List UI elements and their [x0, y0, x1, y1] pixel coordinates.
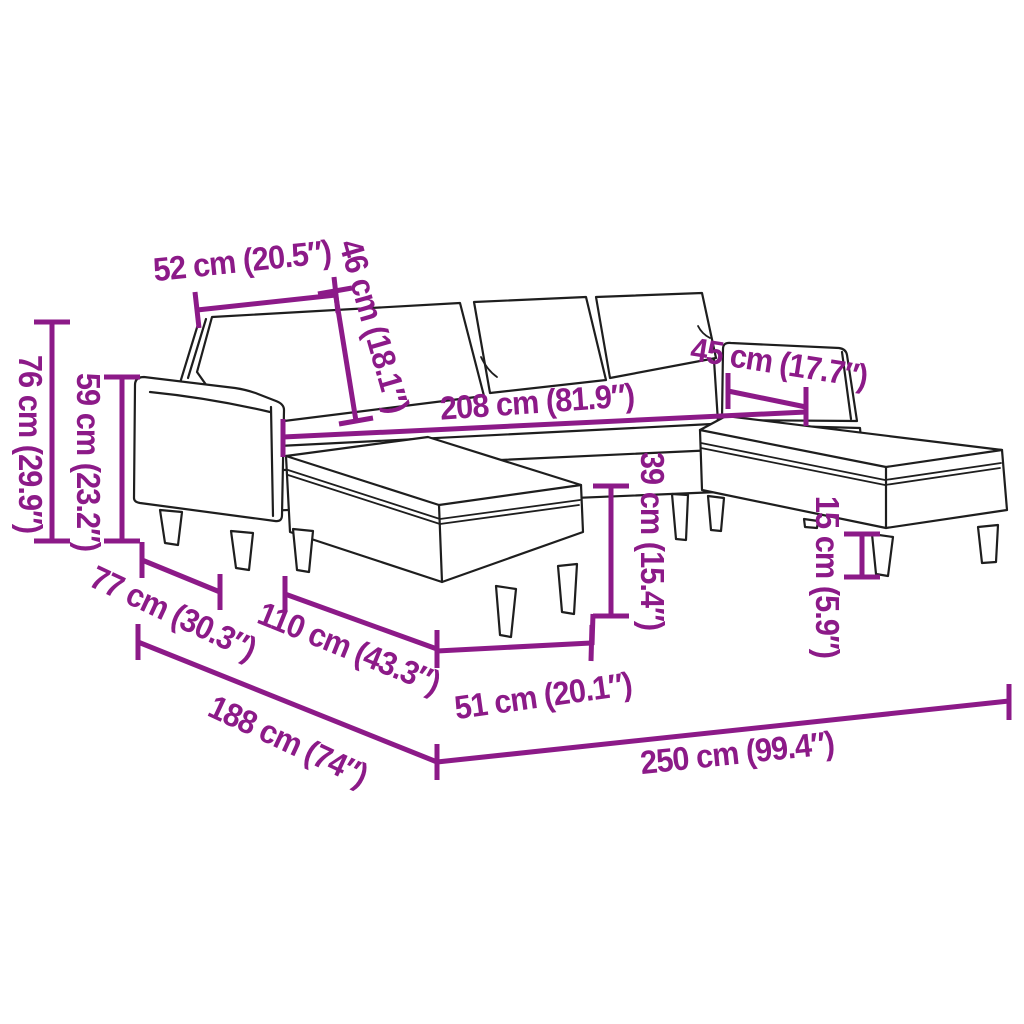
- dim-label-seat-height: 39 cm (15.4″): [633, 452, 671, 630]
- dim-label-armrest-height: 59 cm (23.2″): [69, 373, 107, 551]
- left-footstool-leg-c: [558, 564, 577, 614]
- right-footstool-leg-c: [978, 525, 998, 563]
- left-armrest-leg-b: [231, 531, 253, 570]
- right-footstool: [700, 416, 1007, 576]
- dim-label-total-height: 76 cm (29.9″): [11, 355, 49, 533]
- right-footstool-leg-b: [872, 534, 893, 576]
- left-footstool-leg-a: [293, 529, 313, 572]
- left-footstool-leg-b: [496, 586, 516, 637]
- dim-line-footstool-width: [437, 625, 592, 661]
- left-armrest-leg-a: [160, 510, 182, 545]
- right-footstool-leg-a: [708, 496, 724, 531]
- sofa-leg-middle: [672, 494, 688, 540]
- dim-label-leg-height: 15 cm (5.9″): [808, 496, 846, 658]
- sofa-line-drawing: [134, 293, 1007, 637]
- dim-line-seat-height: [592, 486, 629, 645]
- diagram-canvas: [0, 0, 1024, 1024]
- sofa-dimension-diagram: 52 cm (20.5″) 46 cm (18.1″) 76 cm (29.9″…: [0, 0, 1024, 1024]
- left-armrest: [134, 377, 284, 521]
